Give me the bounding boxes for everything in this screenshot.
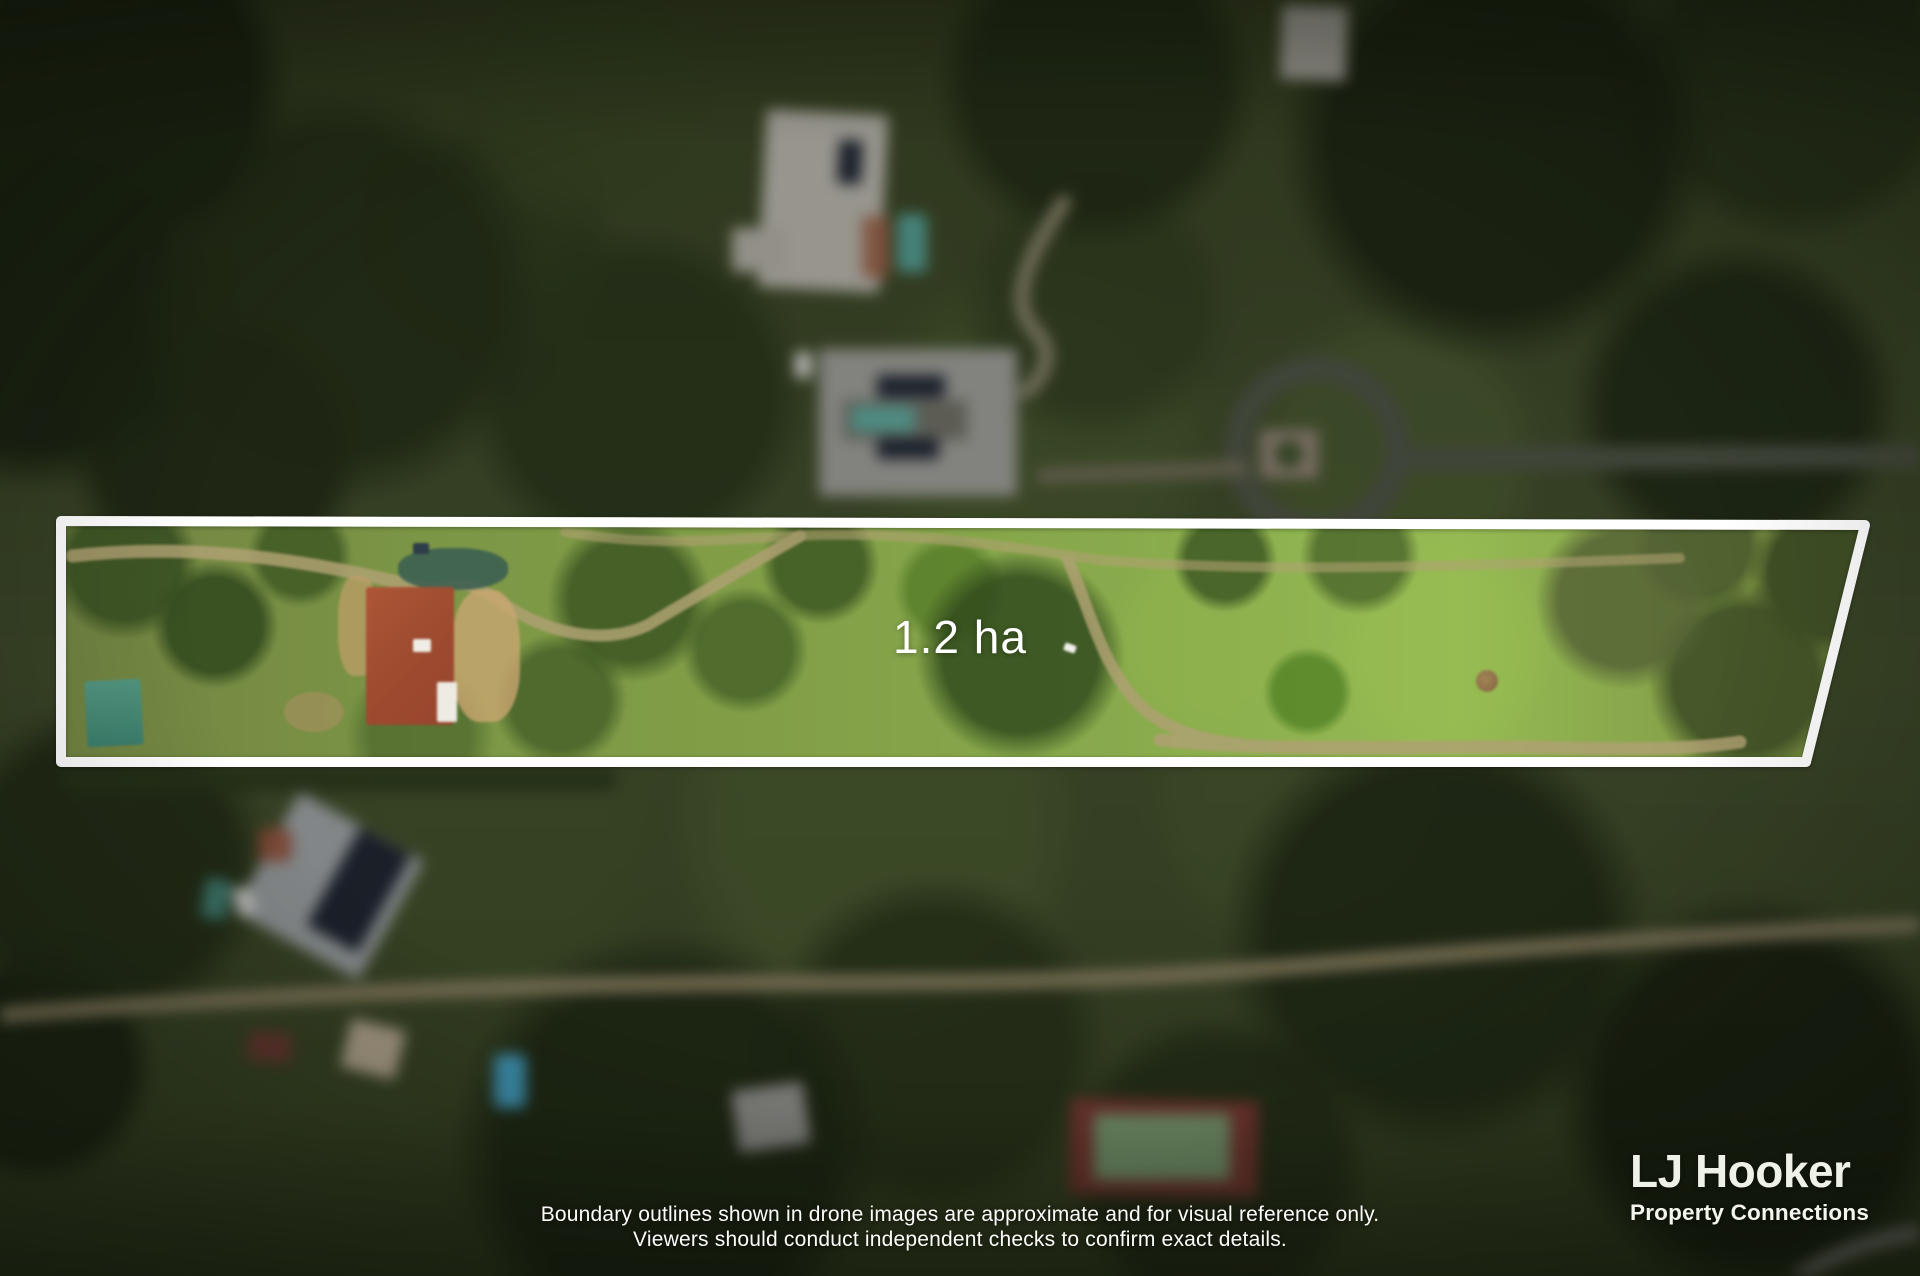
agency-logo: LJ Hooker Property Connections [1630,1146,1869,1225]
area-label: 1.2 ha [893,610,1027,664]
drone-photo: 1.2 ha Boundary outlines shown in drone … [0,0,1920,1276]
agency-logo-wordmark: LJ Hooker [1630,1146,1869,1196]
disclaimer-line-2: Viewers should conduct independent check… [0,1227,1920,1252]
agency-logo-tagline: Property Connections [1630,1200,1869,1225]
